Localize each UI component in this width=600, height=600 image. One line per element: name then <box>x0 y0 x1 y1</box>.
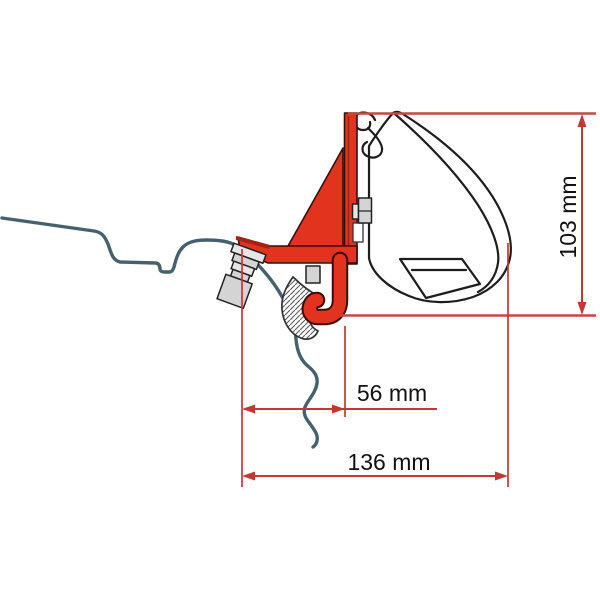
dimension-label-offset: 56 mm <box>357 380 427 406</box>
bolt-slider-channel <box>353 223 363 242</box>
spacer-block <box>306 266 320 283</box>
adapter-dimension-diagram: 103 mm 56 mm 136 mm <box>0 0 600 600</box>
dimension-label-height: 103 mm <box>555 175 581 258</box>
dimension-label-total: 136 mm <box>347 449 430 475</box>
dimension-height-103: 103 mm <box>555 114 587 315</box>
awning-case-outline <box>354 112 510 302</box>
dimension-total-136: 136 mm <box>242 449 508 481</box>
bracket-gusset <box>288 148 343 246</box>
diagram-canvas: 103 mm 56 mm 136 mm <box>0 0 600 600</box>
bolt-washer <box>353 204 359 219</box>
roof-clamp-fitting <box>214 243 266 309</box>
dimension-offset-56: 56 mm <box>242 380 437 414</box>
